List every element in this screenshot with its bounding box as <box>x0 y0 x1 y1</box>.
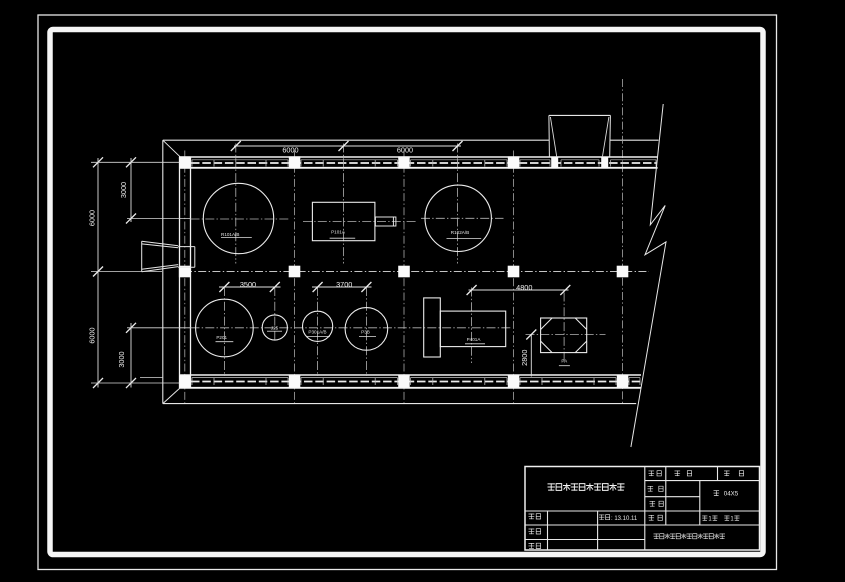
svg-text:R102A/B: R102A/B <box>451 230 469 235</box>
svg-text:P301A/B: P301A/B <box>308 329 326 334</box>
svg-text:P401A: P401A <box>467 337 482 342</box>
svg-text:J25: J25 <box>271 326 279 331</box>
svg-text:3700: 3700 <box>336 280 352 289</box>
svg-text:6000: 6000 <box>397 145 413 154</box>
svg-text:P3B: P3B <box>361 329 370 334</box>
svg-text:P101A: P101A <box>331 230 346 235</box>
svg-text:2800: 2800 <box>520 350 529 366</box>
svg-text:R101A/B: R101A/B <box>221 232 239 237</box>
svg-text:3000: 3000 <box>117 351 126 367</box>
svg-text:P201: P201 <box>216 335 227 340</box>
svg-text:: 13.10.11: : 13.10.11 <box>611 516 638 522</box>
svg-text:6000: 6000 <box>282 145 298 154</box>
svg-text:6000: 6000 <box>88 210 97 226</box>
svg-text:04X5: 04X5 <box>724 491 739 498</box>
svg-text:3500: 3500 <box>240 280 256 289</box>
svg-text:4800: 4800 <box>516 283 532 292</box>
svg-text:6000: 6000 <box>88 327 97 343</box>
svg-text:PA: PA <box>561 359 568 364</box>
svg-text:3000: 3000 <box>119 182 128 198</box>
